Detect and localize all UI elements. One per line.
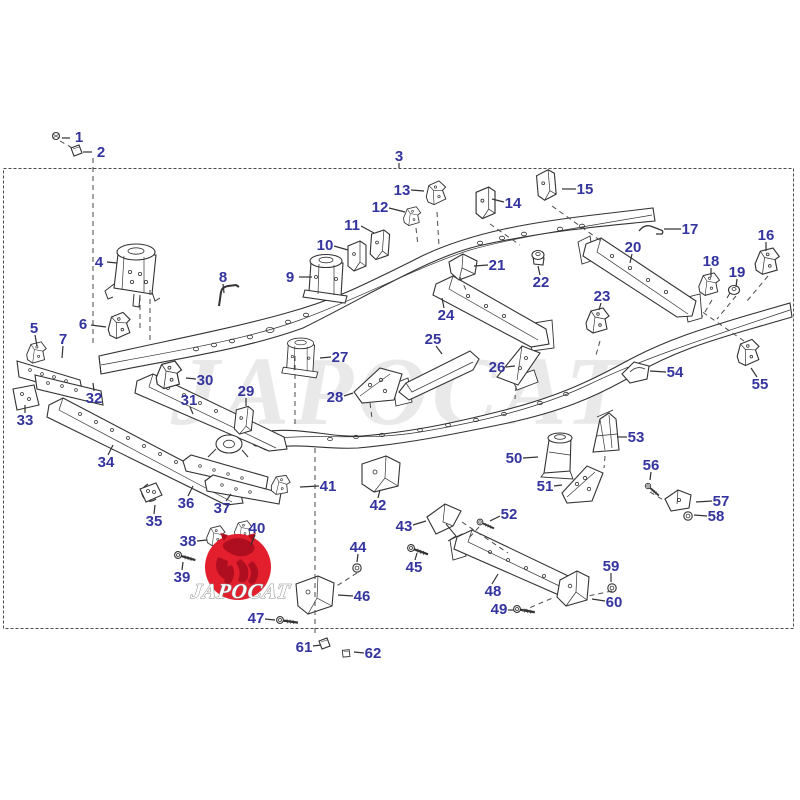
part-label-5[interactable]: 5 xyxy=(30,320,38,337)
part-shape-6 xyxy=(106,312,132,340)
part-label-28[interactable]: 28 xyxy=(327,389,344,406)
part-shape-23 xyxy=(586,308,609,333)
part-label-62[interactable]: 62 xyxy=(365,645,382,662)
part-label-22[interactable]: 22 xyxy=(533,274,550,291)
part-label-15[interactable]: 15 xyxy=(577,181,594,198)
part-label-60[interactable]: 60 xyxy=(606,594,623,611)
part-label-12[interactable]: 12 xyxy=(372,199,389,216)
part-shape-19 xyxy=(727,286,740,299)
part-label-17[interactable]: 17 xyxy=(682,221,699,238)
plate-33 xyxy=(13,385,39,410)
part-shape-11 xyxy=(370,229,390,260)
leader-line-41 xyxy=(300,486,319,487)
part-label-8[interactable]: 8 xyxy=(219,269,227,286)
part-label-10[interactable]: 10 xyxy=(317,237,334,254)
part-label-21[interactable]: 21 xyxy=(489,257,506,274)
part-label-49[interactable]: 49 xyxy=(491,601,508,618)
part-shape-57 xyxy=(665,490,691,511)
leader-line-4 xyxy=(107,262,117,263)
part-label-23[interactable]: 23 xyxy=(594,288,611,305)
part-label-18[interactable]: 18 xyxy=(703,253,720,270)
leader-line-6 xyxy=(91,325,106,327)
part-label-4[interactable]: 4 xyxy=(95,254,104,271)
part-shape-13 xyxy=(424,180,448,206)
part-label-50[interactable]: 50 xyxy=(506,450,523,467)
part-label-26[interactable]: 26 xyxy=(489,359,506,376)
part-label-61[interactable]: 61 xyxy=(296,639,313,656)
part-shape-41 xyxy=(270,474,290,496)
part-label-47[interactable]: 47 xyxy=(248,610,265,627)
part-shape-55 xyxy=(735,339,761,367)
part-label-34[interactable]: 34 xyxy=(98,454,115,471)
part-label-32[interactable]: 32 xyxy=(86,390,103,407)
part-label-11[interactable]: 11 xyxy=(344,217,360,234)
part-label-38[interactable]: 38 xyxy=(180,533,197,550)
part-label-13[interactable]: 13 xyxy=(394,182,411,199)
part-label-43[interactable]: 43 xyxy=(396,518,413,535)
part-label-44[interactable]: 44 xyxy=(350,539,367,556)
logo-wordmark: JAPOCAT xyxy=(189,579,293,603)
part-shape-1 xyxy=(53,133,60,140)
leader-line-60 xyxy=(592,599,605,601)
part-label-29[interactable]: 29 xyxy=(238,383,255,400)
part-shape-30 xyxy=(156,361,181,389)
part-shape-4 xyxy=(105,244,160,307)
leader-line-13 xyxy=(411,190,424,191)
chassis-frame-diagram: JAPOCAT xyxy=(0,0,800,800)
part-label-48[interactable]: 48 xyxy=(485,583,502,600)
leader-line-62 xyxy=(354,652,364,653)
leader-line-12 xyxy=(389,208,405,212)
part-label-40[interactable]: 40 xyxy=(249,520,266,537)
part-shape-18 xyxy=(699,273,720,296)
part-label-2[interactable]: 2 xyxy=(97,144,105,161)
part-shape-29 xyxy=(234,405,254,435)
leader-line-10 xyxy=(334,246,348,250)
part-label-1[interactable]: 1 xyxy=(75,129,83,146)
leader-line-38 xyxy=(197,540,207,541)
part-label-52[interactable]: 52 xyxy=(501,506,518,523)
leader-line-46 xyxy=(338,595,353,596)
part-label-27[interactable]: 27 xyxy=(332,349,349,366)
part-label-56[interactable]: 56 xyxy=(643,457,660,474)
part-label-54[interactable]: 54 xyxy=(667,364,684,381)
part-label-14[interactable]: 14 xyxy=(505,195,522,212)
part-shape-58 xyxy=(684,512,692,520)
part-label-58[interactable]: 58 xyxy=(708,508,725,525)
part-label-9[interactable]: 9 xyxy=(286,269,294,286)
leader-line-51 xyxy=(554,485,562,486)
part-shape-8 xyxy=(219,285,239,306)
part-shape-22 xyxy=(532,251,544,266)
part-shape-27 xyxy=(282,338,318,378)
part-label-19[interactable]: 19 xyxy=(729,264,746,281)
part-shape-39 xyxy=(174,551,196,562)
part-label-25[interactable]: 25 xyxy=(425,331,442,348)
part-shape-45 xyxy=(407,544,429,556)
part-label-42[interactable]: 42 xyxy=(370,497,387,514)
part-label-45[interactable]: 45 xyxy=(406,559,423,576)
part-shape-44 xyxy=(353,564,361,572)
part-label-55[interactable]: 55 xyxy=(752,376,769,393)
leader-line-58 xyxy=(694,515,707,516)
part-shape-9 xyxy=(303,255,347,304)
part-label-31[interactable]: 31 xyxy=(181,392,198,409)
part-label-24[interactable]: 24 xyxy=(438,307,455,324)
part-shape-35 xyxy=(140,483,162,502)
leader-line-52 xyxy=(490,516,500,521)
part-label-3[interactable]: 3 xyxy=(395,148,403,165)
part-shape-12 xyxy=(404,207,421,226)
parts-diagram-page: JAPOCAT xyxy=(0,0,800,800)
leader-line-50 xyxy=(523,457,538,458)
part-shape-56 xyxy=(644,482,661,496)
part-shape-43 xyxy=(427,504,461,541)
leader-line-57 xyxy=(696,501,712,502)
leader-line-61 xyxy=(313,645,321,646)
part-shape-47 xyxy=(276,616,298,624)
leader-line-54 xyxy=(650,371,666,372)
part-label-39[interactable]: 39 xyxy=(174,569,191,586)
part-shape-10 xyxy=(348,241,366,271)
part-label-6[interactable]: 6 xyxy=(79,316,87,333)
part-shape-14 xyxy=(476,187,495,219)
part-label-41[interactable]: 41 xyxy=(320,478,337,495)
part-label-59[interactable]: 59 xyxy=(603,558,620,575)
part-label-37[interactable]: 37 xyxy=(214,500,231,517)
part-shape-62 xyxy=(341,648,352,659)
part-shape-61 xyxy=(319,638,330,649)
leader-line-11 xyxy=(361,226,374,233)
part-shape-15 xyxy=(536,169,557,200)
part-label-53[interactable]: 53 xyxy=(628,429,645,446)
part-label-16[interactable]: 16 xyxy=(758,227,775,244)
part-label-36[interactable]: 36 xyxy=(178,495,195,512)
part-label-46[interactable]: 46 xyxy=(354,588,371,605)
part-shape-42 xyxy=(362,456,400,492)
part-label-35[interactable]: 35 xyxy=(146,513,163,530)
leader-line-47 xyxy=(265,619,275,620)
part-label-33[interactable]: 33 xyxy=(17,412,34,429)
leader-line-43 xyxy=(413,521,426,525)
part-label-20[interactable]: 20 xyxy=(625,239,642,256)
part-shape-59 xyxy=(608,584,616,592)
japocat-logo: JAPOCAT xyxy=(189,533,293,603)
part-shape-16 xyxy=(755,248,779,274)
part-shape-17 xyxy=(639,226,663,234)
part-label-30[interactable]: 30 xyxy=(197,372,214,389)
part-shape-2 xyxy=(71,145,82,156)
part-label-51[interactable]: 51 xyxy=(537,478,554,495)
part-label-7[interactable]: 7 xyxy=(59,331,67,348)
